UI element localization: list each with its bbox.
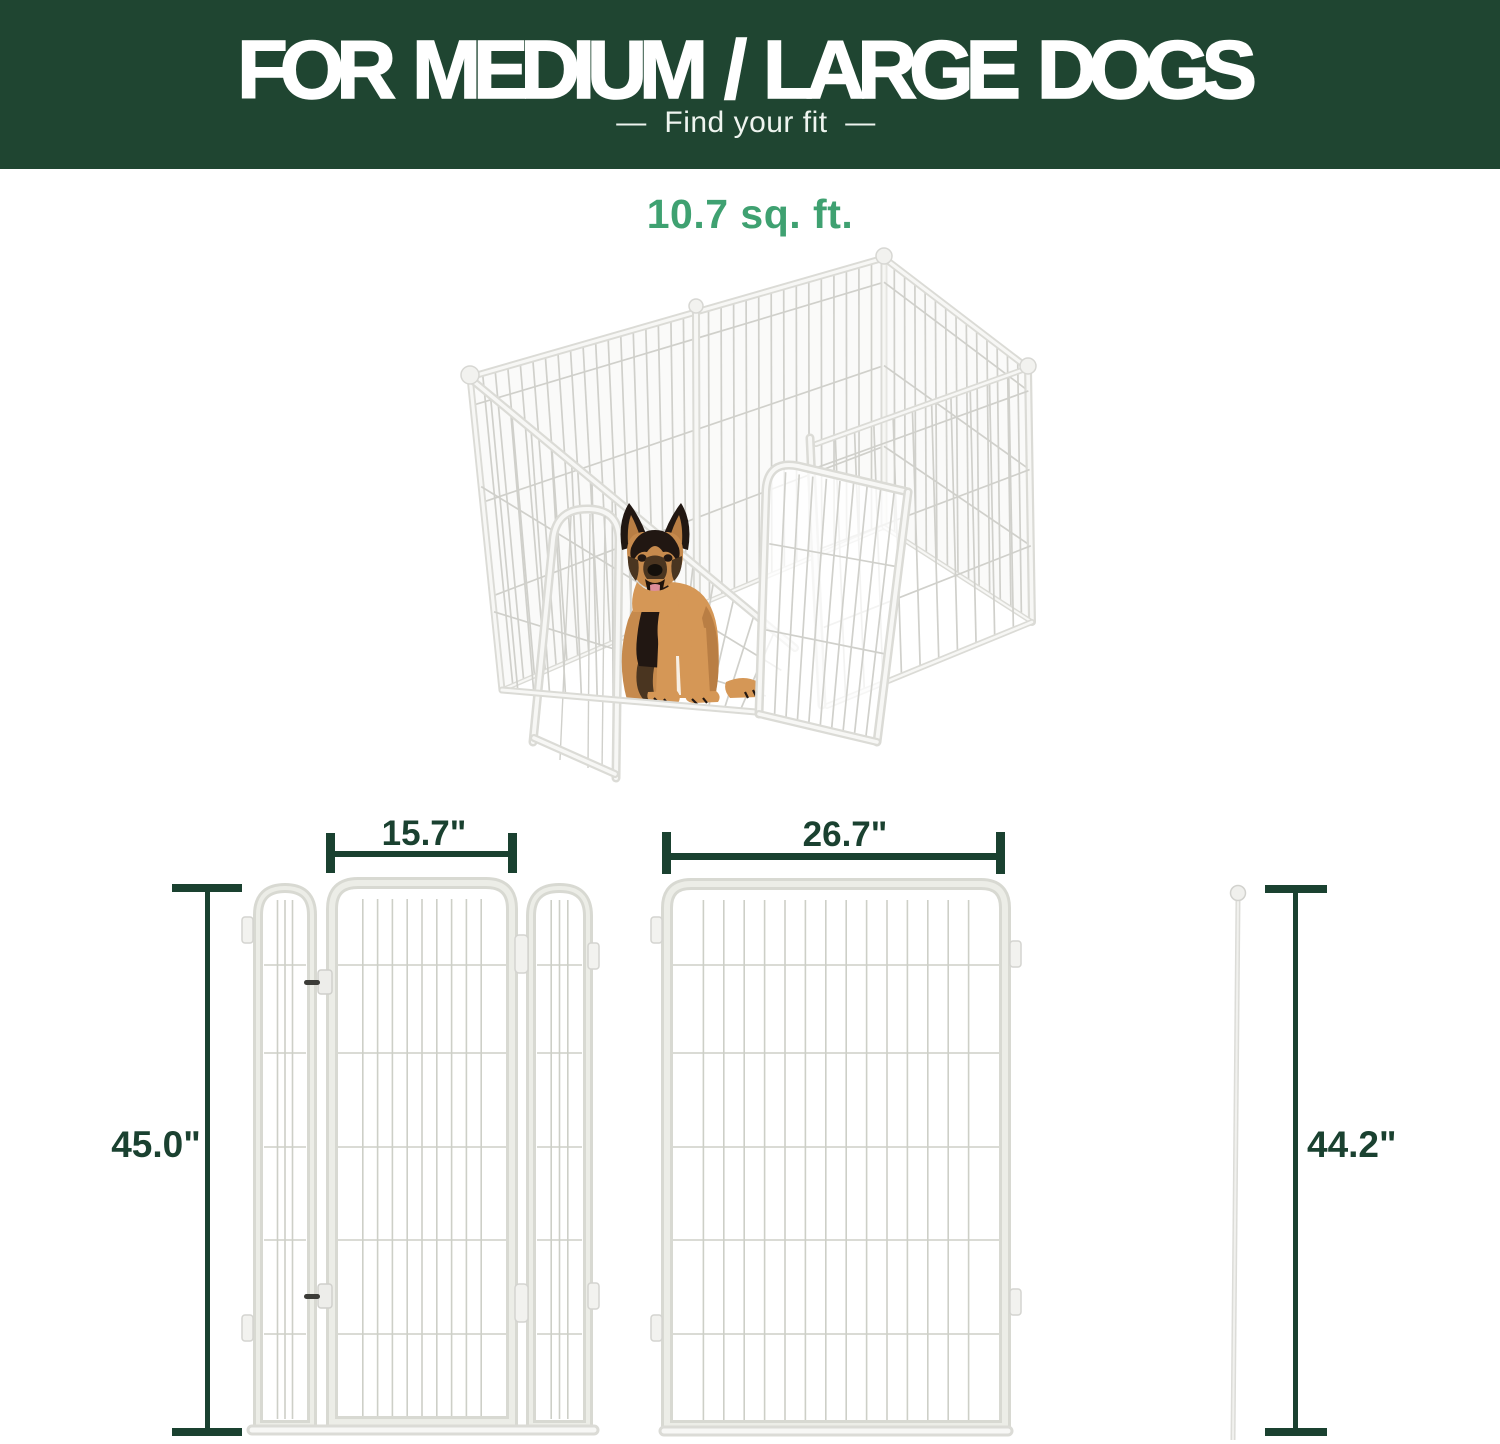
svg-text:45.0": 45.0" — [111, 1124, 201, 1165]
svg-text:15.7": 15.7" — [382, 814, 467, 853]
svg-text:26.7": 26.7" — [803, 815, 888, 854]
svg-text:44.2": 44.2" — [1307, 1124, 1397, 1165]
